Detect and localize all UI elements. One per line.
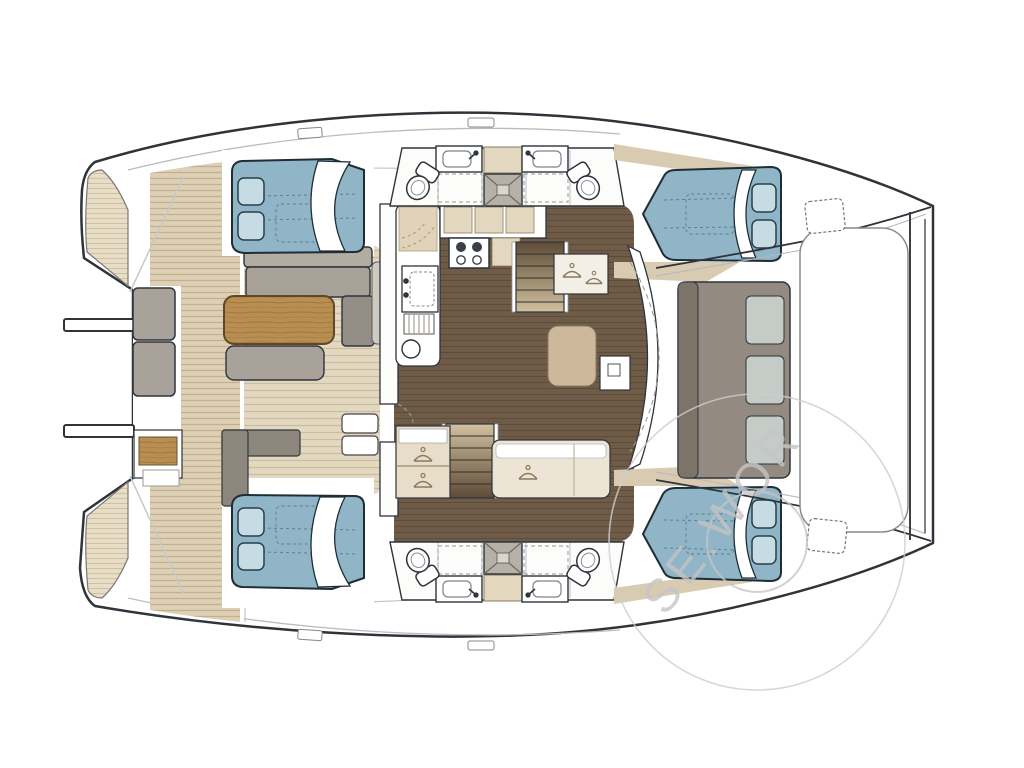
entry-step-lower (342, 436, 378, 455)
wardrobe-port (554, 254, 608, 294)
heads-starboard-pair (390, 542, 624, 602)
wardrobe-starboard (396, 426, 450, 498)
anchor-hatch-icon (806, 518, 847, 554)
salon-aft-wall-upper (380, 204, 398, 404)
galley-round-sink-icon (402, 340, 420, 358)
transom-seat-lower (133, 342, 175, 396)
anchor-hatch-icon (804, 198, 845, 234)
stern-locker-wood-top (139, 437, 177, 465)
galley-drawers (404, 314, 434, 334)
galley-cabinet-3 (506, 207, 534, 233)
galley-cabinet-2 (475, 207, 503, 233)
transom-seat-upper (133, 288, 175, 340)
stove-icon (449, 238, 489, 268)
cockpit-sofa-seat (246, 267, 370, 297)
galley-sink-icon (402, 266, 438, 312)
hull-bench-starboard (492, 440, 610, 498)
transom-door (143, 470, 179, 486)
deck-hatch (298, 629, 323, 641)
floor-plan-canvas: SE.WOR (0, 0, 1024, 768)
deck-hatch (298, 127, 323, 139)
boat-floor-plan: SE.WOR (0, 0, 1024, 768)
trampoline (800, 228, 908, 532)
heads-port-pair (390, 146, 624, 206)
nav-box (600, 356, 630, 390)
salon-aft-wall-lower (380, 442, 398, 516)
deck-hatch (468, 641, 494, 650)
cockpit-chaise (342, 296, 374, 346)
berth-starboard-aft (232, 495, 364, 589)
galley-corner-unit (399, 207, 437, 251)
cockpit-bench (226, 346, 324, 380)
berth-port-aft (232, 159, 364, 253)
galley-cabinet-1 (444, 207, 472, 233)
cockpit-table (224, 296, 334, 344)
deck-hatch (468, 118, 494, 127)
entry-step-upper (342, 414, 378, 433)
nav-seat (548, 326, 596, 386)
davit-arm-starboard (64, 425, 134, 437)
davit-arm-port (64, 319, 134, 331)
